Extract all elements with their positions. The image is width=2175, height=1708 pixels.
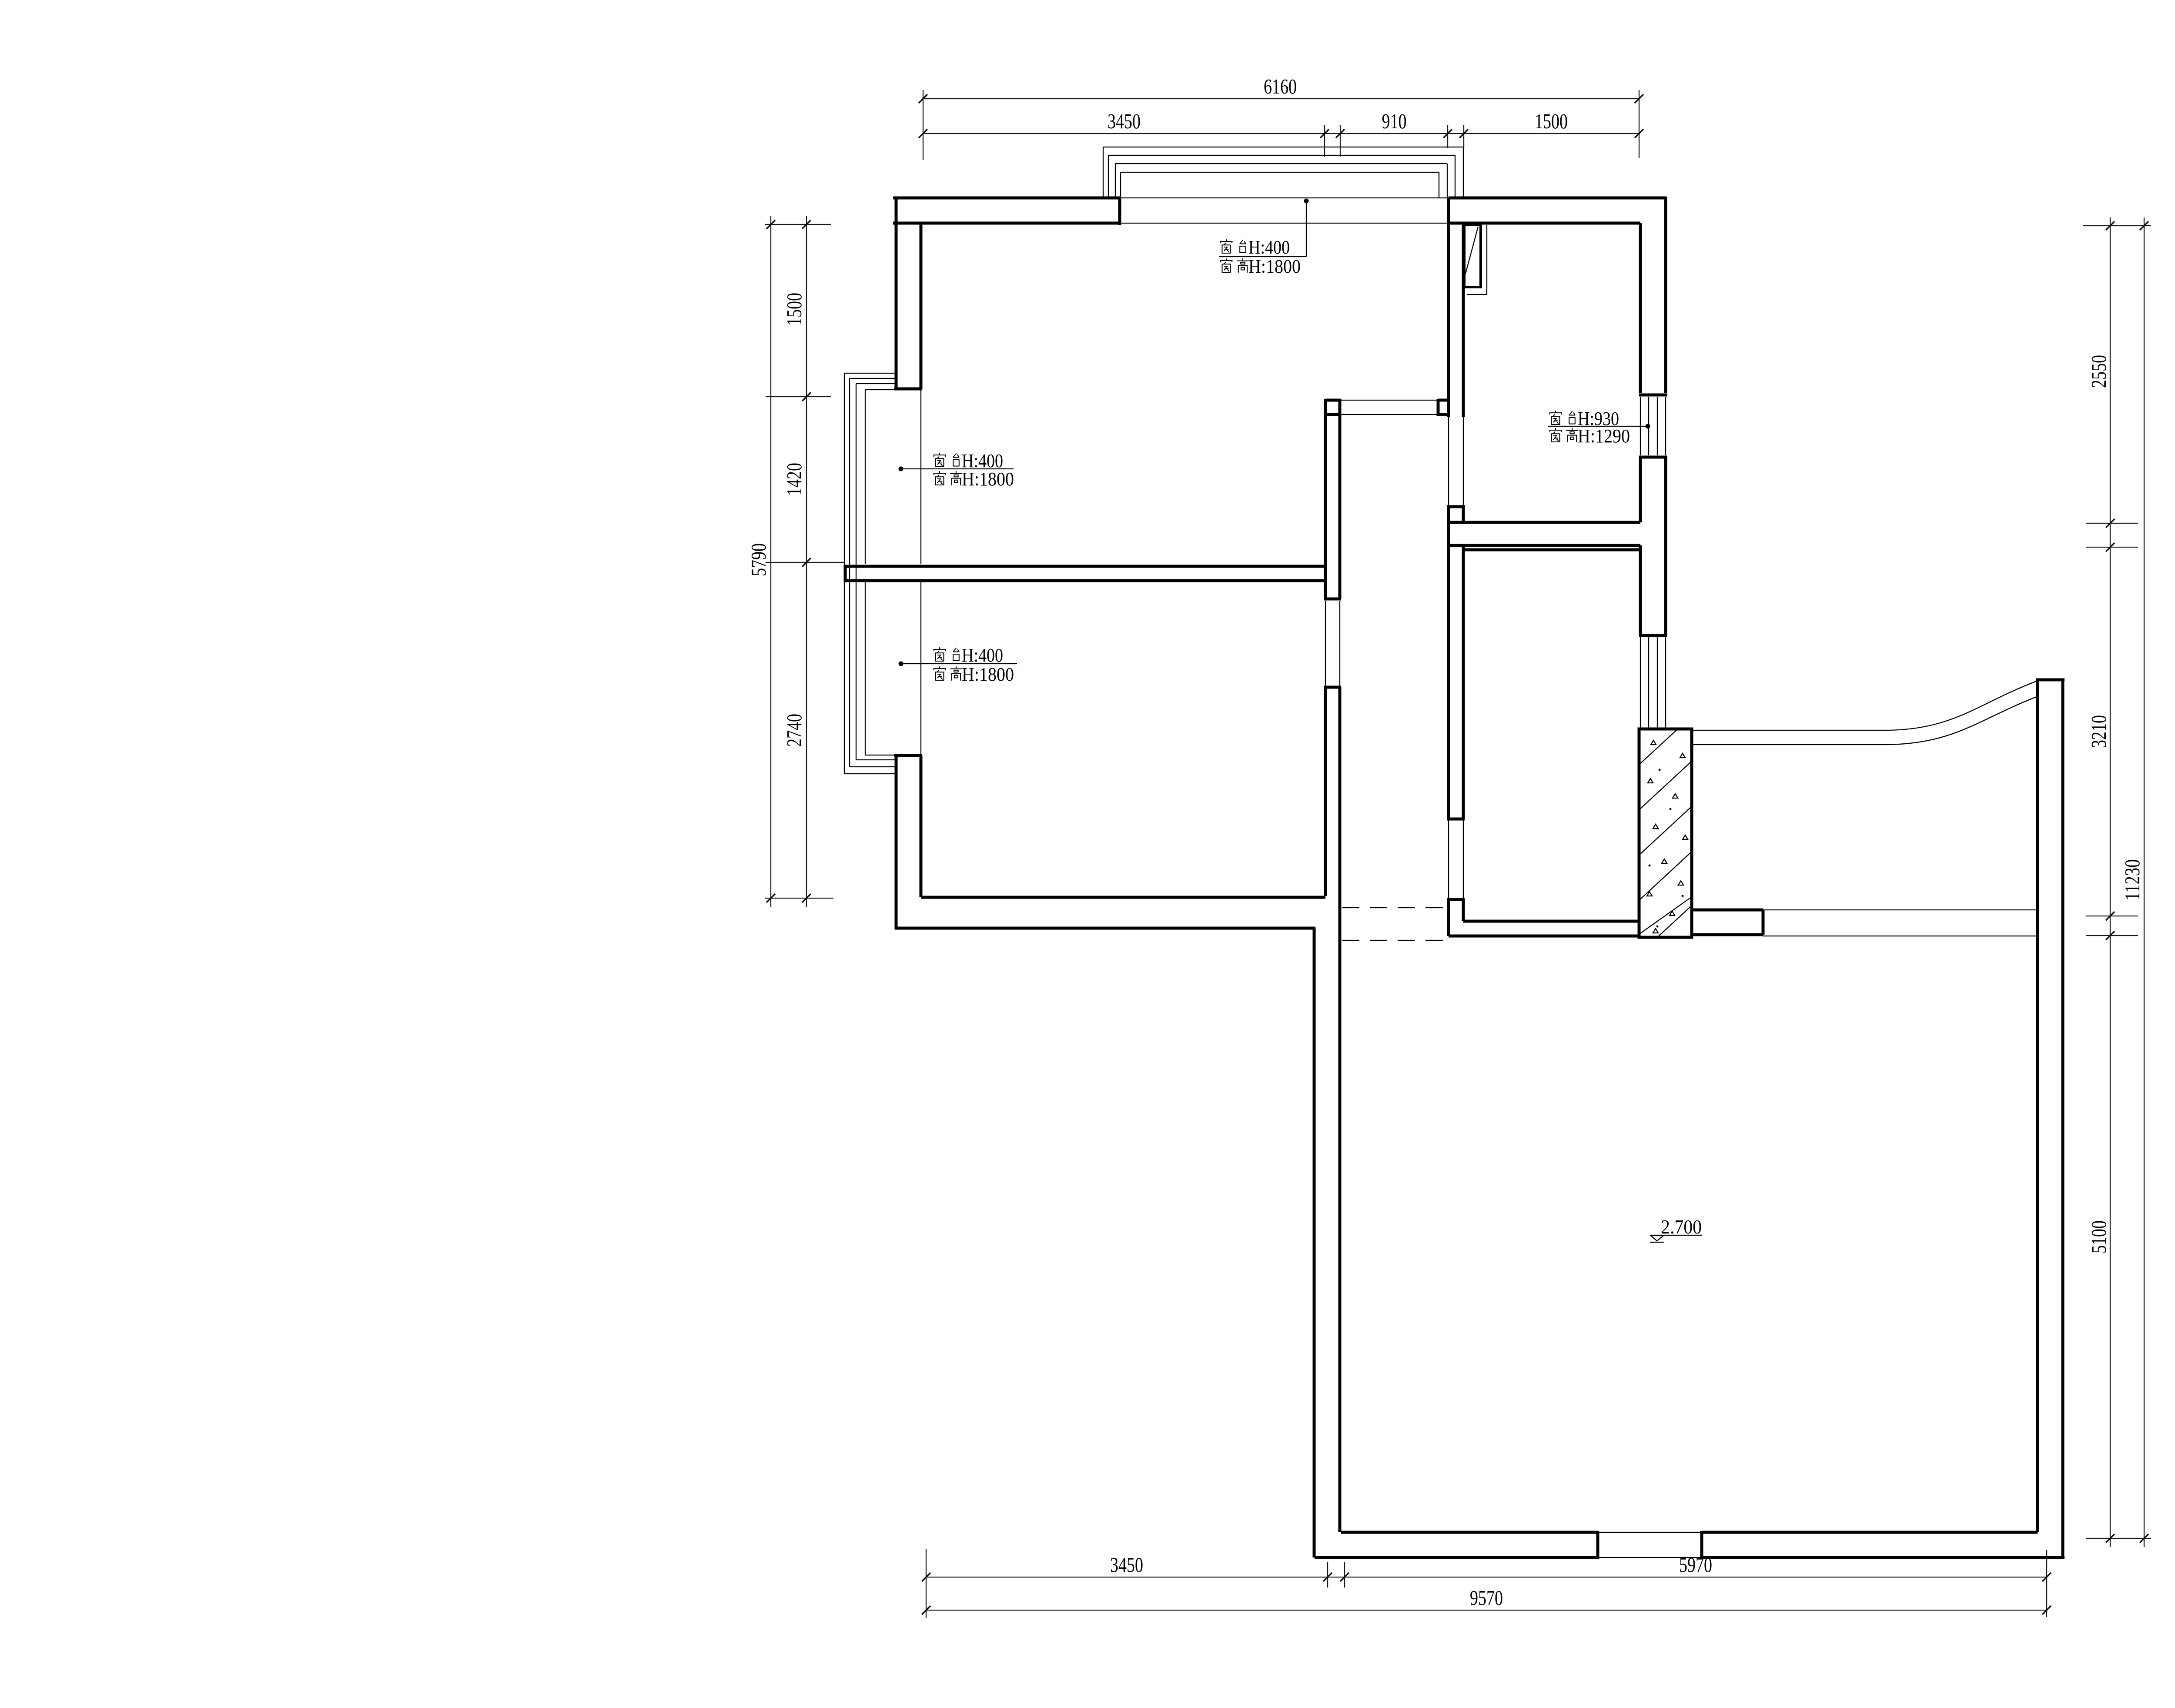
svg-text:6160: 6160 — [1264, 74, 1297, 98]
svg-text:1420: 1420 — [782, 463, 806, 496]
svg-text:5100: 5100 — [2087, 1220, 2111, 1253]
svg-text:H:400: H:400 — [1248, 237, 1290, 258]
svg-text:3210: 3210 — [2087, 715, 2111, 748]
svg-text:2550: 2550 — [2087, 355, 2111, 388]
svg-text:11230: 11230 — [2120, 859, 2144, 901]
svg-text:H:1800: H:1800 — [1248, 256, 1301, 277]
svg-text:5970: 5970 — [1679, 1553, 1712, 1577]
svg-text:9570: 9570 — [1470, 1586, 1503, 1610]
svg-text:H:1800: H:1800 — [962, 664, 1014, 685]
svg-text:H:1290: H:1290 — [1578, 425, 1630, 447]
svg-text:2740: 2740 — [782, 714, 806, 747]
svg-text:1500: 1500 — [782, 293, 806, 326]
svg-text:910: 910 — [1382, 109, 1407, 133]
svg-text:5790: 5790 — [746, 543, 770, 576]
svg-text:H:1800: H:1800 — [962, 468, 1014, 490]
svg-text:2.700: 2.700 — [1661, 1216, 1702, 1238]
svg-text:3450: 3450 — [1110, 1553, 1143, 1577]
svg-text:1500: 1500 — [1535, 109, 1568, 133]
svg-text:3450: 3450 — [1108, 109, 1141, 133]
svg-text:H:400: H:400 — [962, 645, 1003, 666]
